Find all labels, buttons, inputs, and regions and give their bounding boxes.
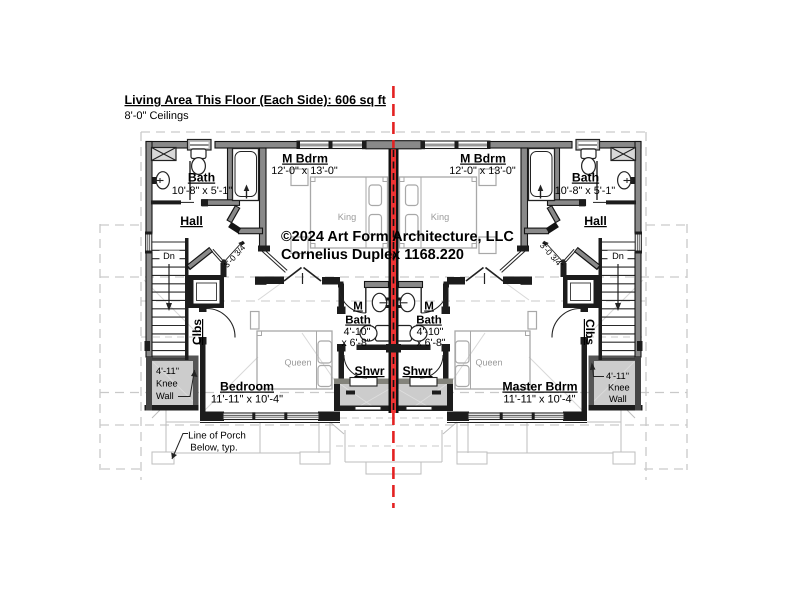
svg-text:Bedroom: Bedroom	[220, 380, 274, 394]
svg-text:Master Bdrm: Master Bdrm	[502, 380, 577, 394]
svg-text:11'-11" x 10'-4": 11'-11" x 10'-4"	[211, 394, 283, 406]
svg-text:Below, typ.: Below, typ.	[190, 443, 237, 454]
svg-text:M: M	[424, 301, 434, 313]
svg-text:M: M	[353, 301, 363, 313]
svg-text:Queen: Queen	[475, 358, 502, 368]
svg-text:King: King	[338, 212, 356, 222]
svg-text:Hall: Hall	[584, 214, 607, 228]
svg-text:Clbs: Clbs	[190, 319, 204, 345]
svg-text:10'-8" x 5'-1": 10'-8" x 5'-1"	[172, 185, 233, 197]
svg-text:Knee: Knee	[156, 379, 178, 389]
svg-text:x 6'-8": x 6'-8"	[341, 337, 370, 349]
svg-text:12'-0" x 13'-0": 12'-0" x 13'-0"	[449, 165, 516, 177]
svg-text:12'-0" x 13'-0": 12'-0" x 13'-0"	[271, 165, 338, 177]
svg-text:Bath: Bath	[188, 171, 215, 185]
svg-text:Bath: Bath	[416, 315, 442, 327]
svg-text:Wall: Wall	[609, 394, 627, 404]
svg-text:Dn: Dn	[163, 251, 175, 261]
svg-text:11'-11" x 10'-4": 11'-11" x 10'-4"	[503, 394, 575, 406]
svg-text:4'-11": 4'-11"	[156, 366, 179, 376]
svg-text:Hall: Hall	[180, 214, 203, 228]
svg-text:Living Area This Floor (Each S: Living Area This Floor (Each Side): 606 …	[125, 93, 387, 107]
svg-text:8'-0" Ceilings: 8'-0" Ceilings	[125, 110, 190, 122]
svg-text:©2024 Art Form Architecture, L: ©2024 Art Form Architecture, LLC	[281, 229, 514, 245]
svg-text:Shwr: Shwr	[402, 364, 432, 378]
svg-text:4'-11": 4'-11"	[606, 371, 629, 381]
svg-text:M Bdrm: M Bdrm	[460, 152, 506, 166]
svg-text:Cornelius Duplex 1168.220: Cornelius Duplex 1168.220	[281, 247, 464, 263]
svg-text:Knee: Knee	[608, 383, 630, 393]
svg-text:Bath: Bath	[572, 171, 599, 185]
svg-text:King: King	[431, 212, 449, 222]
svg-text:10'-8" x 5'-1": 10'-8" x 5'-1"	[555, 185, 616, 197]
svg-text:Dn: Dn	[612, 251, 624, 261]
svg-text:x 6'-8": x 6'-8"	[416, 337, 445, 349]
svg-text:M Bdrm: M Bdrm	[282, 152, 328, 166]
svg-text:Wall: Wall	[156, 391, 174, 401]
svg-text:Queen: Queen	[284, 358, 311, 368]
svg-text:Line of Porch: Line of Porch	[188, 431, 246, 442]
svg-text:Bath: Bath	[345, 315, 371, 327]
svg-text:Shwr: Shwr	[354, 364, 384, 378]
svg-text:Clbs: Clbs	[583, 319, 597, 345]
